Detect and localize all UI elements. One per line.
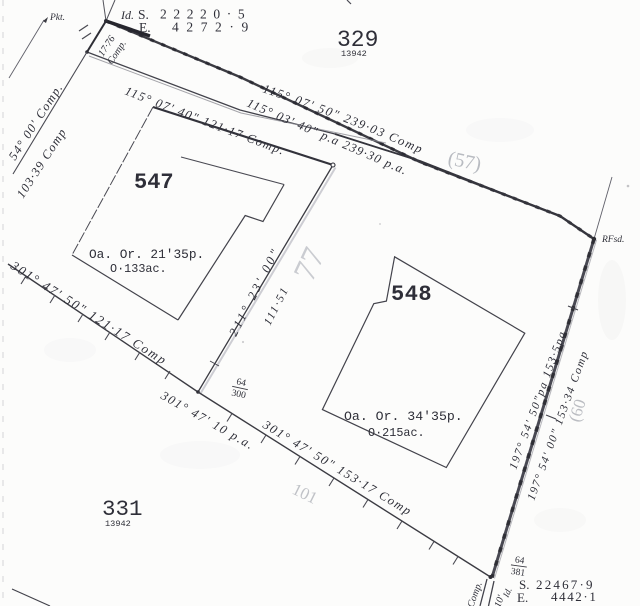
svg-text:64: 64 xyxy=(514,555,525,566)
svg-text:Comp.: Comp. xyxy=(465,580,484,606)
svg-text:197° 54' 50"pa 153·5pa: 197° 54' 50"pa 153·5pa xyxy=(508,329,570,471)
svg-text:Oa. Or. 34'35p.: Oa. Or. 34'35p. xyxy=(344,409,463,424)
svg-text:77: 77 xyxy=(286,242,332,286)
svg-text:O·133ac.: O·133ac. xyxy=(110,262,167,276)
svg-text:548: 548 xyxy=(391,282,432,307)
svg-text:(57): (57) xyxy=(446,147,483,175)
svg-text:Id.: Id. xyxy=(120,8,134,22)
svg-text:O·215ac.: O·215ac. xyxy=(368,426,425,440)
svg-text:Oa. Or. 21'35p.: Oa. Or. 21'35p. xyxy=(89,247,204,262)
svg-text:300: 300 xyxy=(231,388,247,401)
svg-text:RFsd.: RFsd. xyxy=(601,235,624,245)
svg-text:E.: E. xyxy=(517,590,528,605)
svg-text:101: 101 xyxy=(289,480,320,508)
svg-text:547: 547 xyxy=(134,170,174,195)
svg-text:4272·9: 4272·9 xyxy=(172,20,256,35)
svg-text:Pkt.: Pkt. xyxy=(49,13,65,23)
svg-text:4442·1: 4442·1 xyxy=(551,589,597,604)
svg-text:211° 23' 00": 211° 23' 00" xyxy=(226,245,283,339)
svg-text:E.: E. xyxy=(139,20,151,35)
svg-text:13942: 13942 xyxy=(105,519,131,529)
svg-text:111·51: 111·51 xyxy=(262,285,292,328)
